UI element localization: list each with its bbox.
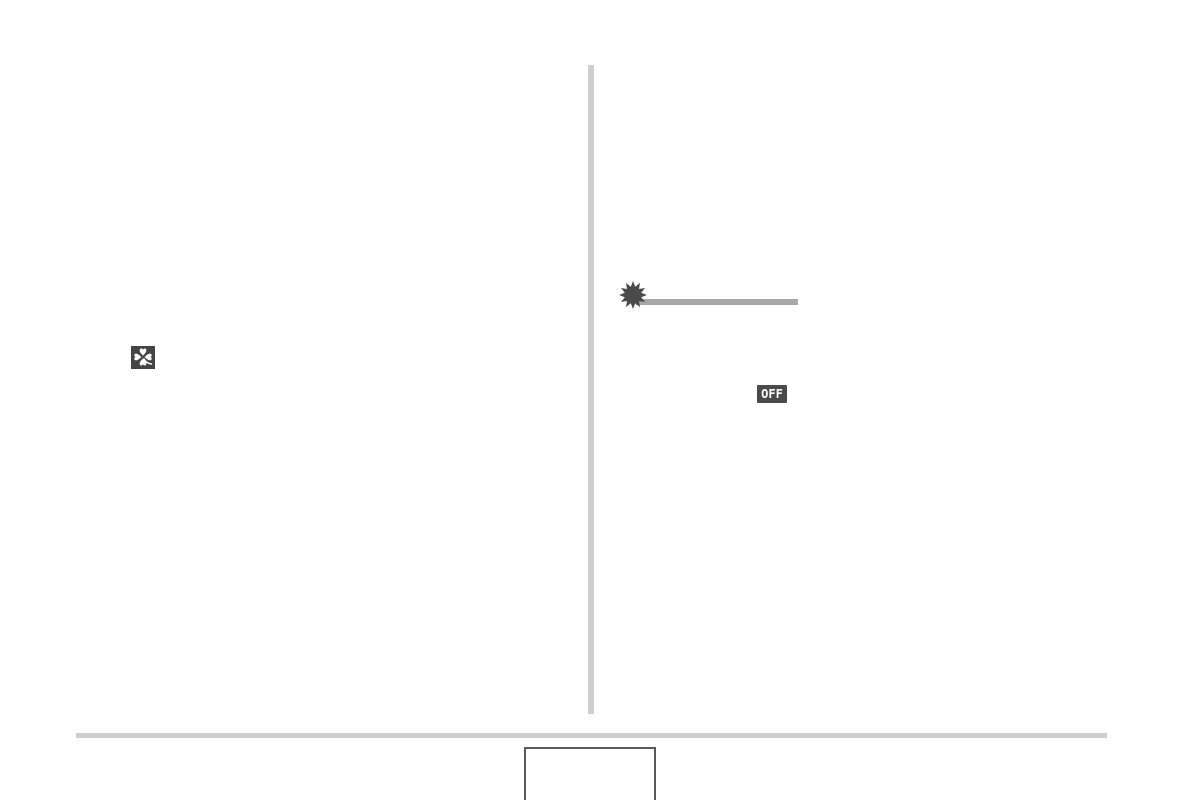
flash-off-badge: OFF [757,385,787,403]
footer-rule [76,733,1107,738]
flash-callout-line [636,299,798,305]
starburst-flash-icon [619,281,647,309]
four-leaf-clover-icon [131,346,155,369]
manual-page: OFF [0,0,1183,800]
page-number-box [524,747,656,800]
column-divider [588,65,594,714]
flash-off-badge-label: OFF [761,387,783,401]
